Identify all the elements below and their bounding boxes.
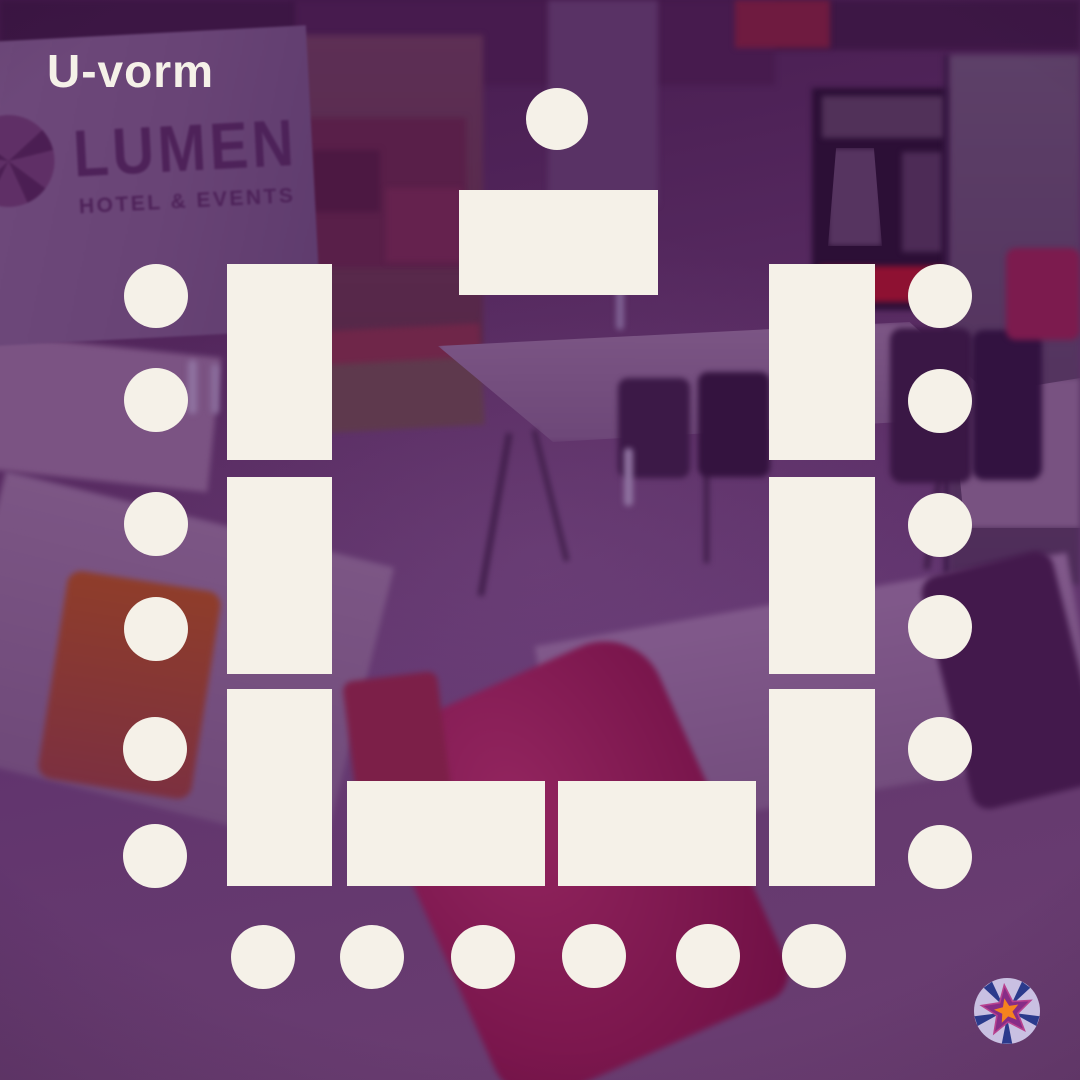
head-table xyxy=(459,190,658,295)
bottom-chair-4 xyxy=(562,924,626,988)
lumen-corner-logo-icon xyxy=(967,971,1047,1051)
left-table-2 xyxy=(227,477,332,674)
seating-diagram xyxy=(0,0,1080,1080)
bottom-table-2 xyxy=(558,781,756,886)
right-chair-1 xyxy=(908,264,972,328)
right-chair-5 xyxy=(908,717,972,781)
right-table-2 xyxy=(769,477,875,674)
right-chair-2 xyxy=(908,369,972,433)
left-chair-1 xyxy=(124,264,188,328)
bottom-table-1 xyxy=(347,781,545,886)
bottom-chair-6 xyxy=(782,924,846,988)
right-chair-3 xyxy=(908,493,972,557)
left-table-1 xyxy=(227,264,332,460)
poster-canvas: LUMEN HOTEL & EVENTS U-vorm xyxy=(0,0,1080,1080)
left-chair-4 xyxy=(124,597,188,661)
right-chair-6 xyxy=(908,825,972,889)
left-chair-2 xyxy=(124,368,188,432)
bottom-chair-3 xyxy=(451,925,515,989)
right-chair-4 xyxy=(908,595,972,659)
bottom-chair-2 xyxy=(340,925,404,989)
head-chair xyxy=(526,88,588,150)
left-table-3 xyxy=(227,689,332,886)
left-chair-6 xyxy=(123,824,187,888)
bottom-chair-1 xyxy=(231,925,295,989)
right-table-1 xyxy=(769,264,875,460)
left-chair-5 xyxy=(123,717,187,781)
bottom-chair-5 xyxy=(676,924,740,988)
left-chair-3 xyxy=(124,492,188,556)
page-title: U-vorm xyxy=(47,44,214,98)
right-table-3 xyxy=(769,689,875,886)
